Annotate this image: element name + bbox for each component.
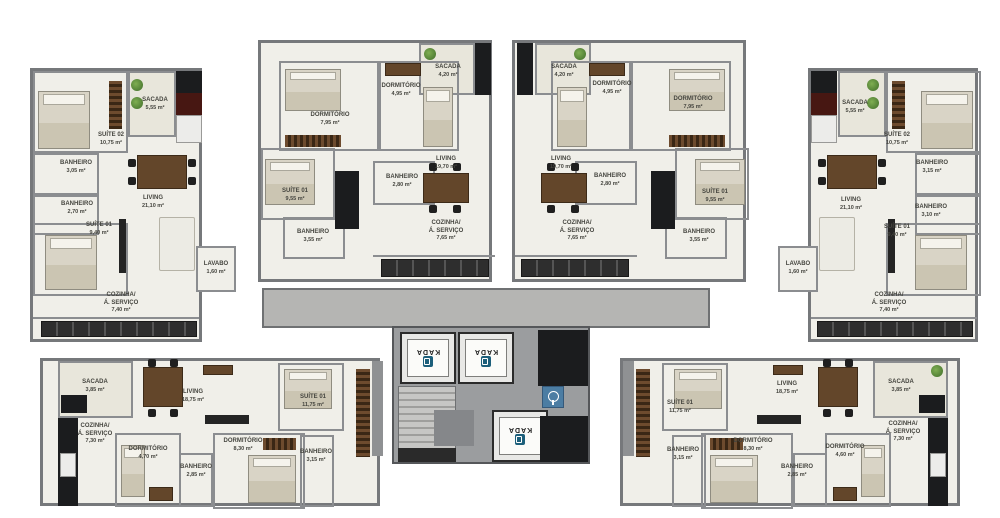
shaft [517, 43, 533, 95]
sofa [819, 217, 855, 271]
accessibility-icon [542, 386, 564, 408]
elevator-brand-label: KADA [416, 349, 440, 356]
appliance [930, 453, 946, 477]
wardrobe [356, 369, 370, 457]
wall-column [372, 361, 383, 456]
unit-top-center-right: SACADA4,20 m² DORMITÓRIO4,95 m² DORMITÓR… [512, 40, 746, 282]
wardrobe [669, 135, 725, 147]
desk [149, 487, 173, 501]
room-label-bedroom-1: DORMITÓRIO4,95 m² [382, 83, 421, 97]
chair [148, 359, 156, 367]
bed [248, 455, 296, 503]
room-label-suite-01: SUÍTE 0111,75 m² [300, 394, 326, 408]
kitchen-counter [381, 259, 489, 277]
bed [915, 235, 967, 290]
dining-table [137, 155, 187, 189]
room-label-sacada: SACADA3,85 m² [888, 379, 914, 393]
room-label-kitchen: COZINHA/ Á. SERVIÇO7,40 m² [872, 292, 907, 314]
desk [385, 63, 421, 76]
bed [861, 445, 885, 497]
room-label-bathroom-2: BANHEIRO2,85 m² [781, 464, 813, 478]
room-label-bathroom-1: BANHEIRO3,15 m² [667, 447, 699, 461]
room-label-bathroom-1: BANHEIRO2,85 m² [180, 464, 212, 478]
wardrobe [636, 369, 650, 457]
room-label-bathroom-1: BANHEIRO2,80 m² [594, 173, 626, 187]
wardrobe [285, 135, 341, 147]
room-label-bathroom-2: BANHEIRO3,10 m² [915, 204, 947, 218]
kitchen-counter [521, 259, 629, 277]
wall [33, 317, 199, 319]
room-label-lavabo: LAVABO1,60 m² [786, 261, 810, 275]
bed [38, 91, 90, 149]
stairs-landing [434, 410, 474, 446]
room-label-bedroom-1: DORMITÓRIO8,30 m² [734, 438, 773, 452]
desk [589, 63, 625, 76]
elevator-brand-label: KADA [474, 349, 498, 356]
room-label-living: LIVING19,70 m² [550, 156, 572, 170]
room-label-bedroom-2: DORMITÓRIO8,30 m² [224, 438, 263, 452]
room-label-bathroom-2: BANHEIRO2,70 m² [61, 201, 93, 215]
dining-table [827, 155, 877, 189]
room-label-kitchen: COZINHA/ Á. SERVIÇO7,40 m² [104, 292, 139, 314]
room-label-bathroom-1: BANHEIRO2,80 m² [386, 174, 418, 188]
plant-icon [424, 48, 436, 60]
shaft [811, 93, 837, 115]
room-label-bedroom-2: DORMITÓRIO7,95 m² [311, 112, 350, 126]
room-label-bathroom-1: BANHEIRO3,05 m² [60, 160, 92, 174]
plant-icon [931, 365, 943, 377]
desk [833, 487, 857, 501]
elevator: KADA [400, 332, 456, 384]
room-label-suite-01: SUÍTE 019,40 m² [86, 222, 112, 236]
bed [285, 69, 341, 111]
tv-panel [757, 415, 801, 424]
room-label-living: LIVING18,75 m² [776, 381, 798, 395]
dining-table [541, 173, 587, 203]
shaft [475, 43, 491, 95]
wall [811, 317, 977, 319]
chair [818, 159, 826, 167]
balcony-grill [919, 395, 945, 413]
bed [45, 235, 97, 290]
room-label-suite-01: SUÍTE 019,40 m² [884, 224, 910, 238]
elevator: KADA [458, 332, 514, 384]
appliance [60, 453, 76, 477]
room-label-sacada: SACADA5,55 m² [142, 97, 168, 111]
unit-top-center-left: SACADA4,20 m² DORMITÓRIO4,95 m² DORMITÓR… [258, 40, 492, 282]
wardrobe [263, 438, 296, 450]
unit-bottom-right: LIVING18,75 m² SUÍTE 0111,75 m² BANHEIRO… [620, 358, 960, 506]
elevator-brand-label: KADA [508, 427, 532, 434]
elevator-core: KADA KADA KADA [392, 326, 590, 464]
room-label-bathroom-2: BANHEIRO3,15 m² [300, 449, 332, 463]
bed [710, 455, 758, 503]
kitchen-counter [817, 321, 973, 337]
elevator-panel: KADA [465, 339, 507, 377]
bed [423, 87, 453, 147]
shaft [335, 171, 359, 229]
chair [128, 159, 136, 167]
bed [921, 91, 973, 149]
elevator-panel: KADA [499, 417, 541, 455]
room-bathroom-2 [300, 435, 334, 507]
room-label-sacada: SACADA4,20 m² [551, 64, 577, 78]
tv-panel [205, 415, 249, 424]
bed [557, 87, 587, 147]
room-label-living: LIVING21,10 m² [142, 195, 164, 209]
stairs-landing-dark [398, 448, 456, 462]
elevator-logo-icon [515, 435, 525, 446]
room-label-kitchen: COZINHA/ Á. SERVIÇO7,30 m² [78, 423, 113, 445]
room-label-sacada: SACADA3,85 m² [82, 379, 108, 393]
shaft [540, 416, 588, 462]
room-label-bathroom-2: BANHEIRO3,55 m² [683, 229, 715, 243]
dining-table [423, 173, 469, 203]
sideboard [203, 365, 233, 375]
balcony-grill [61, 395, 87, 413]
elevator-panel: KADA [407, 339, 449, 377]
unit-top-right: SACADA5,55 m² SUÍTE 0210,75 m² BANHEIRO3… [808, 68, 978, 342]
sofa [159, 217, 195, 271]
wall-column [623, 361, 634, 456]
room-bathroom-2 [793, 453, 827, 507]
unit-bottom-left: SACADA3,85 m² COZINHA/ Á. SERVIÇO7,30 m²… [40, 358, 380, 506]
wardrobe [892, 81, 905, 129]
room-bathroom-1 [672, 435, 706, 507]
room-label-bedroom-2: DORMITÓRIO7,95 m² [674, 96, 713, 110]
room-label-living: LIVING18,75 m² [182, 389, 204, 403]
dining-table [818, 367, 858, 407]
wall [373, 255, 495, 257]
room-label-lavabo: LAVABO1,60 m² [204, 261, 228, 275]
floor-plan: SACADA5,55 m² SUÍTE 0210,75 m² BANHEIRO3… [0, 0, 1000, 518]
room-bathroom-1 [179, 453, 213, 507]
room-label-bathroom-1: BANHEIRO3,15 m² [916, 160, 948, 174]
shaft [651, 171, 675, 229]
room-label-living: LIVING21,10 m² [840, 197, 862, 211]
wardrobe [109, 81, 122, 129]
plant-icon [867, 97, 879, 109]
elevator-logo-icon [423, 357, 433, 368]
room-label-suite-02: SUÍTE 0210,75 m² [884, 132, 910, 146]
corridor [262, 288, 710, 328]
chair [823, 359, 831, 367]
room-label-bedroom-2: DORMITÓRIO4,60 m² [826, 444, 865, 458]
room-label-bedroom-1: DORMITÓRIO4,70 m² [129, 446, 168, 460]
plant-icon [131, 79, 143, 91]
room-label-suite-01: SUÍTE 019,55 m² [282, 188, 308, 202]
shaft [176, 71, 202, 93]
room-label-kitchen: COZINHA/ Á. SERVIÇO7,30 m² [886, 421, 921, 443]
room-label-kitchen: COZINHA/ Á. SERVIÇO7,65 m² [560, 220, 595, 242]
room-label-suite-01: SUÍTE 0111,75 m² [667, 400, 693, 414]
room-label-sacada: SACADA4,20 m² [435, 64, 461, 78]
room-label-suite-01: SUÍTE 019,55 m² [702, 189, 728, 203]
unit-top-left: SACADA5,55 m² SUÍTE 0210,75 m² BANHEIRO3… [30, 68, 202, 342]
plant-icon [574, 48, 586, 60]
room-label-kitchen: COZINHA/ Á. SERVIÇO7,65 m² [429, 220, 464, 242]
wall [515, 255, 637, 257]
tv-panel [119, 219, 126, 273]
room-label-living: LIVING19,70 m² [435, 156, 457, 170]
elevator-logo-icon [481, 357, 491, 368]
room-label-sacada: SACADA5,55 m² [842, 100, 868, 114]
dining-table [143, 367, 183, 407]
plant-icon [867, 79, 879, 91]
room-label-bedroom-1: DORMITÓRIO4,95 m² [593, 81, 632, 95]
shaft [538, 330, 588, 386]
shaft [811, 71, 837, 93]
appliance [176, 115, 202, 143]
room-label-bathroom-2: BANHEIRO3,55 m² [297, 229, 329, 243]
appliance [811, 115, 837, 143]
sideboard [773, 365, 803, 375]
kitchen-counter [41, 321, 197, 337]
shaft [176, 93, 202, 115]
room-label-suite-02: SUÍTE 0210,75 m² [98, 132, 124, 146]
